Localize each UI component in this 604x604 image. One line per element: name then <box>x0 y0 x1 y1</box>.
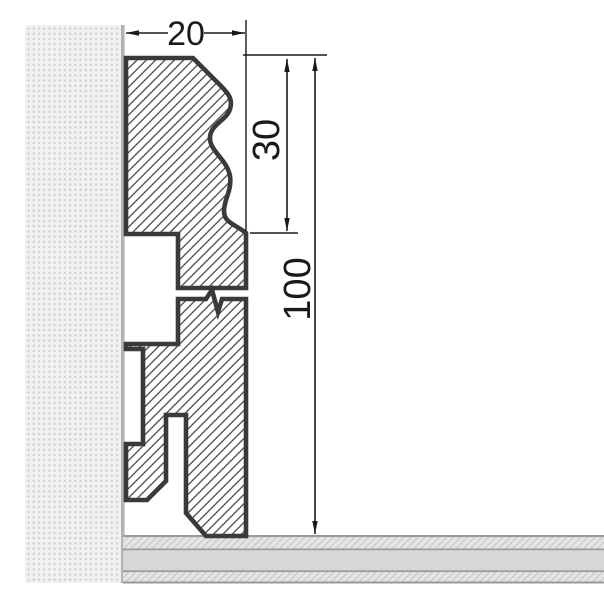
dim-label-upper-height: 30 <box>246 119 288 161</box>
floor-top-screed-band <box>123 537 604 549</box>
floor-section <box>123 535 604 584</box>
wall-section <box>25 25 125 583</box>
dim-label-width: 20 <box>167 15 205 53</box>
floor-separator-1 <box>123 549 604 551</box>
floor-separator-2 <box>123 570 604 572</box>
technical-drawing-page: 20 30 100 <box>0 0 604 604</box>
wall-stipple-area <box>25 25 121 583</box>
floor-top-edge <box>123 535 604 537</box>
dim-label-total-height: 100 <box>277 257 319 320</box>
floor-bottom-edge <box>123 582 604 584</box>
floor-bottom-screed-band <box>123 572 604 581</box>
skirting-profile-drawing: 20 30 100 <box>0 0 604 604</box>
floor-middle-band <box>123 550 604 570</box>
